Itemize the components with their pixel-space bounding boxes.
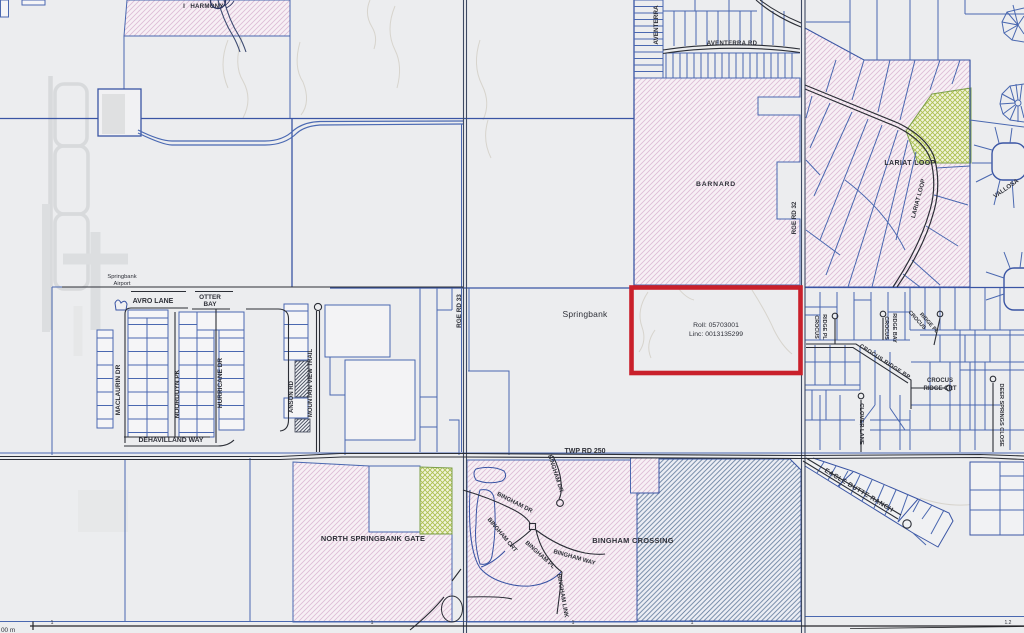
svg-text:1: 1 [371,620,374,626]
svg-text:DEER SPRINGS CLOSE: DEER SPRINGS CLOSE [998,383,1004,446]
svg-text:RGE RD 32: RGE RD 32 [791,201,798,234]
svg-text:HURRICANE DR: HURRICANE DR [217,358,224,409]
svg-text:BINGHAM CROSSING: BINGHAM CROSSING [592,536,674,545]
svg-text:1: 1 [691,620,694,626]
svg-text:CROCUS: CROCUS [927,378,953,384]
svg-text:NORTH SPRINGBANK GATE: NORTH SPRINGBANK GATE [321,534,425,543]
svg-text:Springbank: Springbank [107,274,136,280]
svg-text:RIDGE PL: RIDGE PL [821,314,827,340]
svg-text:Springbank: Springbank [562,309,608,319]
svg-text:AVENTERRA: AVENTERRA [653,5,660,45]
svg-text:CROCUS: CROCUS [813,315,819,339]
svg-text:1: 1 [51,620,54,626]
svg-text:DEHAVILLAND WAY: DEHAVILLAND WAY [139,437,204,444]
svg-text:NOORDUYN PK: NOORDUYN PK [174,369,181,418]
svg-text:00 m: 00 m [1,627,15,633]
svg-text:RIDGE BAY: RIDGE BAY [891,313,897,343]
svg-text:BARNARD: BARNARD [696,181,736,188]
svg-text:TWP RD 250: TWP RD 250 [564,448,605,455]
svg-text:Roll: 05703001: Roll: 05703001 [693,322,739,329]
svg-text:AVENTERRA RD: AVENTERRA RD [707,41,758,47]
svg-text:Airport: Airport [113,281,130,287]
svg-text:MACLAURIN DR: MACLAURIN DR [115,364,122,415]
svg-text:OTTER: OTTER [199,294,221,301]
svg-text:CLOVER LANE: CLOVER LANE [858,403,864,445]
svg-text:MOUNTAIN VIEW TRAIL: MOUNTAIN VIEW TRAIL [308,349,314,418]
svg-text:BAY: BAY [204,301,218,308]
svg-text:RGE RD 33: RGE RD 33 [456,294,463,328]
svg-text:ANSON RD: ANSON RD [289,380,295,413]
svg-text:Linc: 0013135299: Linc: 0013135299 [689,331,743,338]
svg-text:I: I [183,3,185,10]
svg-text:AVRO LANE: AVRO LANE [133,298,174,305]
svg-text:CROCUS: CROCUS [883,316,889,340]
svg-text:LARIAT LOOP: LARIAT LOOP [884,160,935,167]
svg-text:1: 1 [572,620,575,626]
svg-text:1.2: 1.2 [1005,620,1012,626]
svg-text:RIDGE CRT: RIDGE CRT [924,386,957,392]
